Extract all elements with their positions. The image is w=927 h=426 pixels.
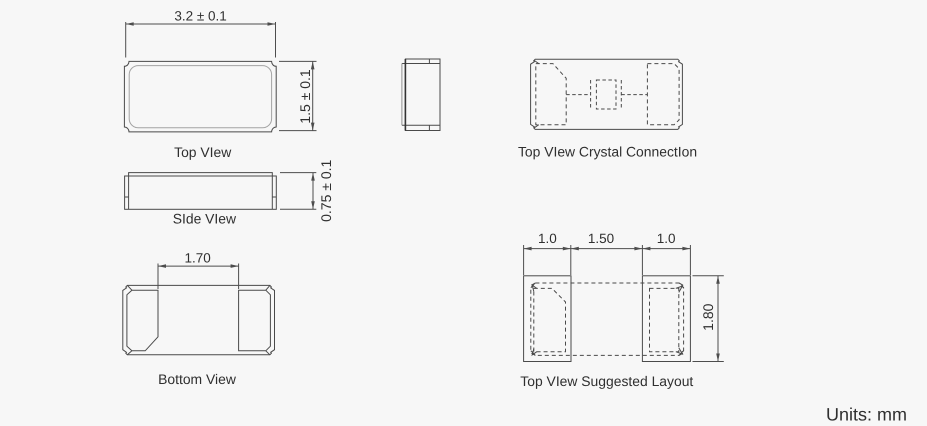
svg-text:1.50: 1.50: [588, 231, 614, 246]
svg-text:0.75 ± 0.1: 0.75 ± 0.1: [318, 160, 334, 222]
svg-text:1.70: 1.70: [184, 250, 210, 265]
svg-text:Units: mm: Units: mm: [826, 404, 907, 424]
svg-text:Top VIew Suggested Layout: Top VIew Suggested Layout: [520, 373, 693, 389]
svg-text:Top VIew: Top VIew: [174, 144, 232, 160]
svg-text:3.2 ± 0.1: 3.2 ± 0.1: [174, 9, 226, 24]
svg-text:1.0: 1.0: [538, 231, 557, 246]
svg-text:1.80: 1.80: [700, 303, 716, 330]
svg-text:Top VIew Crystal ConnectIon: Top VIew Crystal ConnectIon: [518, 144, 697, 160]
svg-text:SIde VIew: SIde VIew: [173, 211, 237, 227]
svg-text:1.5 ± 0.1: 1.5 ± 0.1: [297, 69, 313, 124]
svg-text:Bottom View: Bottom View: [158, 371, 237, 387]
svg-text:1.0: 1.0: [657, 231, 676, 246]
